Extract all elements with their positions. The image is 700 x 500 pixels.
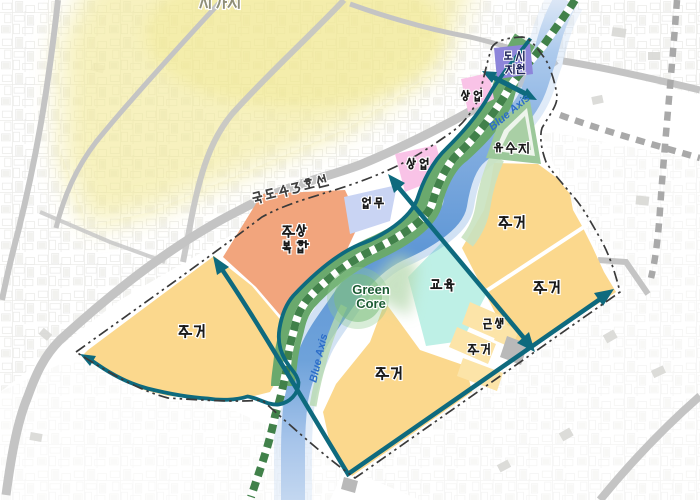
svg-text:Green: Green — [352, 282, 390, 297]
svg-text:Core: Core — [356, 296, 386, 311]
